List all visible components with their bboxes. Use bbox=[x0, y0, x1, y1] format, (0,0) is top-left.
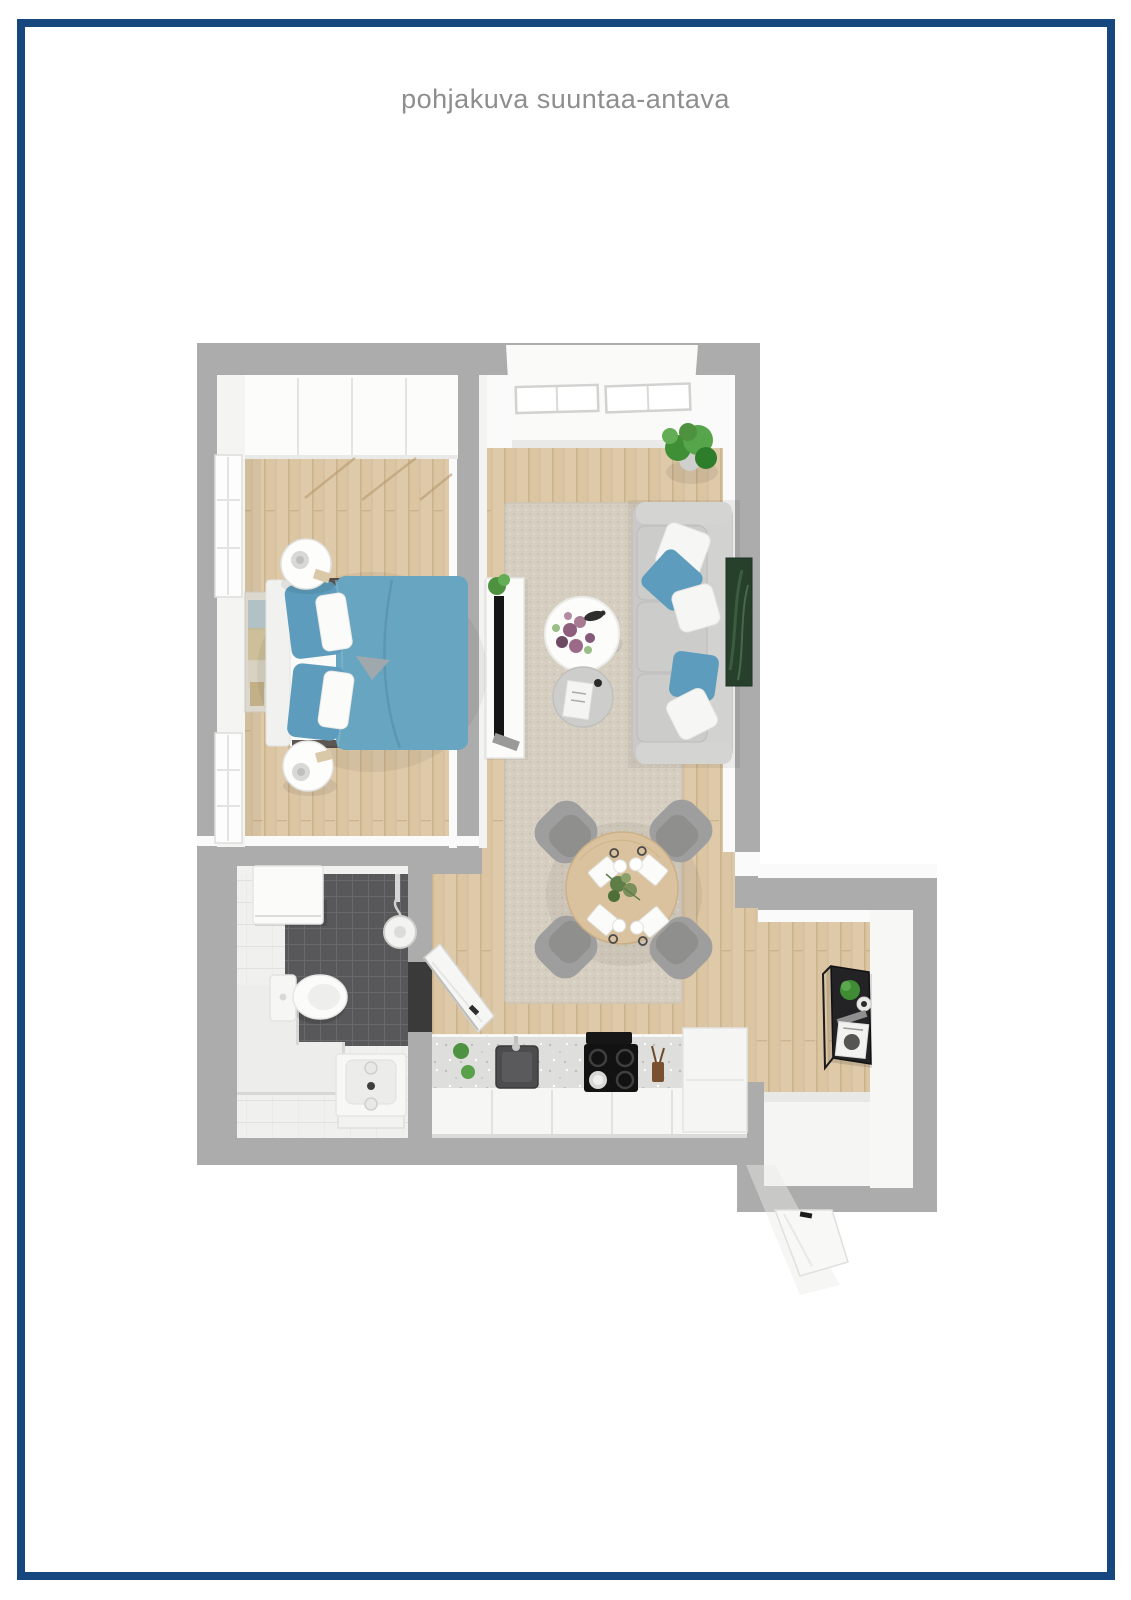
washing-machine bbox=[253, 866, 327, 926]
door-opening bbox=[408, 962, 432, 1032]
candle bbox=[594, 679, 602, 687]
desk-magazine bbox=[835, 1022, 868, 1059]
toilet bbox=[270, 975, 347, 1024]
bedroom-window-1 bbox=[215, 455, 242, 597]
wallface-entry-right bbox=[870, 910, 913, 1188]
sofa bbox=[628, 500, 740, 768]
wall-entry-right bbox=[913, 878, 937, 1212]
sofa-armrest-bottom bbox=[636, 742, 732, 764]
sofa-armrest-top bbox=[636, 502, 732, 524]
kitchen-appliance bbox=[586, 1032, 632, 1044]
living-wall-art bbox=[726, 558, 752, 686]
kitchen bbox=[432, 1028, 747, 1138]
bed bbox=[257, 572, 487, 772]
tv-stand-body bbox=[486, 578, 524, 758]
wallcap-living-right-end bbox=[735, 852, 760, 876]
floor-plan-page: pohjakuva suuntaa-antava bbox=[0, 0, 1131, 1600]
tv-screen bbox=[494, 596, 504, 736]
wall-entry-top bbox=[758, 878, 937, 910]
coffee-table-gray bbox=[553, 667, 613, 727]
bed-duvet bbox=[336, 576, 468, 750]
tv-stand bbox=[484, 574, 528, 760]
wall-bottom-kitchen bbox=[197, 1138, 747, 1165]
magazine bbox=[563, 680, 594, 719]
living-plant bbox=[662, 423, 718, 484]
wallcap-entry-top bbox=[758, 864, 937, 878]
bedroom-window-2 bbox=[215, 733, 242, 843]
sink-faucet bbox=[367, 1082, 375, 1090]
cooktop bbox=[584, 1032, 638, 1092]
console-desk bbox=[823, 966, 872, 1068]
bathroom-sink bbox=[336, 1054, 406, 1128]
floor-plan bbox=[0, 0, 1131, 1600]
